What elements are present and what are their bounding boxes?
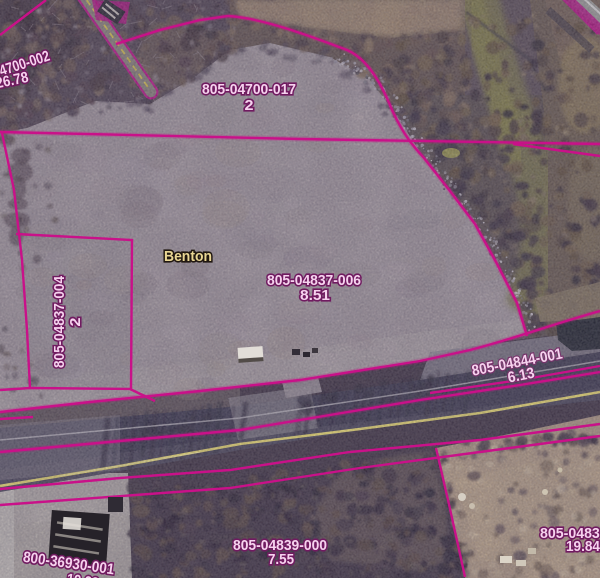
svg-text:805-04837-004: 805-04837-004	[51, 276, 68, 368]
svg-text:8.51: 8.51	[300, 287, 331, 304]
svg-text:19.84: 19.84	[566, 538, 600, 555]
svg-text:7.55: 7.55	[268, 551, 294, 568]
svg-text:2: 2	[245, 97, 254, 114]
svg-text:2: 2	[67, 318, 84, 327]
svg-text:Benton: Benton	[164, 248, 212, 265]
svg-text:805-04700-017: 805-04700-017	[202, 81, 296, 98]
